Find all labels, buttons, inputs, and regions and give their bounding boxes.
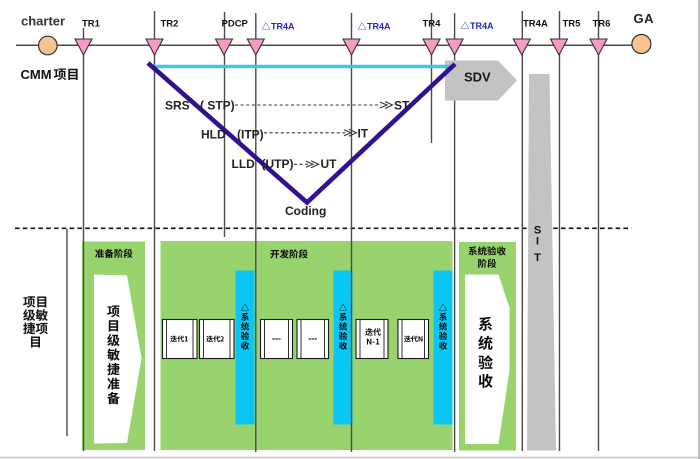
svg-text:SRS: SRS [165,99,190,113]
svg-text:LLD: LLD [232,157,256,171]
svg-text:I: I [536,236,539,248]
svg-text:GA: GA [634,11,655,26]
svg-text:(ITP): (ITP) [237,128,264,142]
svg-text:TR5: TR5 [563,19,582,30]
svg-text:TR2: TR2 [161,19,179,30]
svg-text:TR4A: TR4A [523,19,548,30]
svg-text:SDV: SDV [464,70,491,85]
svg-text:TR6: TR6 [593,19,611,30]
svg-text:charter: charter [21,14,65,29]
svg-text:TR1: TR1 [82,19,101,30]
svg-text:(UTP): (UTP) [262,157,294,171]
svg-text:UT: UT [321,157,338,171]
svg-text:TR4A: TR4A [271,22,295,32]
svg-text:( STP): ( STP) [200,99,235,113]
svg-text:---: --- [272,334,281,344]
svg-text:Coding: Coding [285,204,326,218]
svg-text:T: T [534,252,541,264]
svg-text:PDCP: PDCP [222,19,249,30]
svg-text:---: --- [308,334,317,344]
svg-text:ST: ST [394,99,410,113]
svg-text:TR4A: TR4A [367,22,391,32]
svg-text:IT: IT [358,127,369,141]
svg-text:TR4A: TR4A [470,21,494,31]
svg-text:HLD: HLD [201,128,226,142]
svg-text:CMM: CMM [21,67,52,82]
svg-text:TR4: TR4 [423,19,442,30]
